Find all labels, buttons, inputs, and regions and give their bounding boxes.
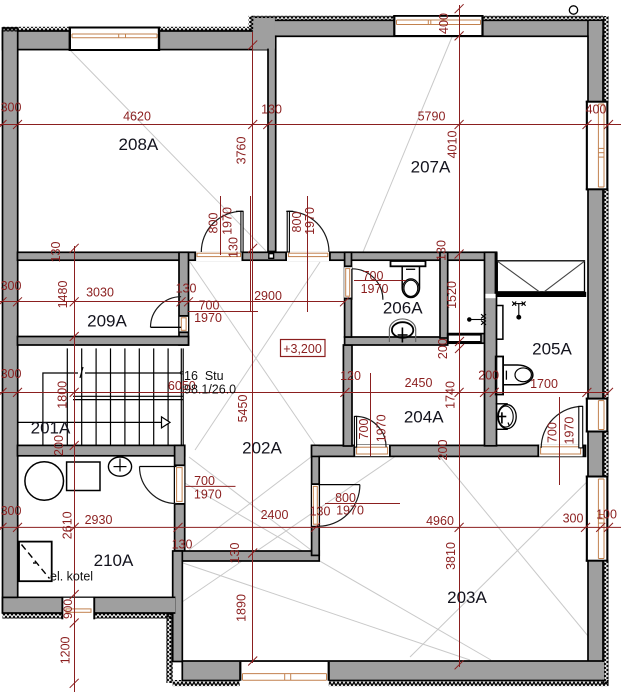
svg-text:130: 130: [261, 103, 282, 117]
svg-text:1970: 1970: [303, 207, 317, 235]
svg-text:1480: 1480: [56, 281, 70, 309]
svg-text:1970: 1970: [336, 504, 364, 518]
svg-text:4960: 4960: [426, 514, 454, 528]
svg-text:1970: 1970: [220, 207, 234, 235]
svg-text:98.1/26.0: 98.1/26.0: [184, 383, 236, 397]
svg-text:900: 900: [61, 599, 75, 619]
svg-text:800: 800: [206, 213, 220, 234]
svg-text:el. kotel: el. kotel: [50, 570, 93, 584]
svg-text:1520: 1520: [445, 281, 459, 309]
svg-text:1200: 1200: [58, 636, 72, 664]
svg-text:700: 700: [357, 419, 371, 440]
svg-text:1970: 1970: [562, 417, 576, 445]
svg-text:200: 200: [436, 338, 450, 359]
svg-text:200: 200: [478, 369, 499, 383]
svg-text:130: 130: [49, 242, 63, 263]
svg-text:4620: 4620: [123, 110, 151, 124]
svg-text:+3,200: +3,200: [283, 342, 322, 356]
svg-text:4010: 4010: [445, 131, 459, 159]
svg-text:300: 300: [1, 367, 22, 381]
svg-text:130: 130: [172, 538, 193, 552]
svg-text:207A: 207A: [411, 158, 451, 177]
svg-text:2930: 2930: [85, 513, 113, 527]
svg-text:2900: 2900: [254, 289, 282, 303]
svg-text:1970: 1970: [194, 311, 222, 325]
svg-text:210A: 210A: [94, 551, 134, 570]
svg-text:130: 130: [226, 237, 240, 258]
svg-text:208A: 208A: [119, 135, 159, 154]
svg-text:400: 400: [437, 13, 451, 34]
svg-text:201A: 201A: [31, 419, 71, 438]
svg-text:2610: 2610: [60, 511, 74, 539]
svg-text:3760: 3760: [234, 137, 248, 165]
svg-text:300: 300: [563, 512, 584, 526]
svg-text:206A: 206A: [383, 299, 423, 318]
svg-text:130: 130: [228, 543, 242, 564]
svg-text:1970: 1970: [361, 282, 389, 296]
svg-text:3030: 3030: [86, 286, 114, 300]
svg-text:300: 300: [1, 279, 22, 293]
svg-text:800: 800: [290, 212, 304, 233]
svg-text:130: 130: [310, 505, 331, 519]
svg-text:204A: 204A: [404, 408, 444, 427]
svg-text:1800: 1800: [56, 381, 70, 409]
svg-text:1740: 1740: [443, 381, 457, 409]
svg-text:200: 200: [52, 435, 66, 456]
svg-text:100: 100: [596, 508, 617, 522]
svg-text:120: 120: [340, 369, 361, 383]
svg-text:300: 300: [1, 504, 22, 518]
svg-text:1970: 1970: [194, 488, 222, 502]
svg-text:1700: 1700: [530, 377, 558, 391]
svg-text:700: 700: [545, 422, 559, 443]
svg-text:130: 130: [434, 240, 448, 261]
svg-text:300: 300: [1, 101, 22, 115]
svg-text:1890: 1890: [234, 594, 248, 622]
svg-text:209A: 209A: [87, 312, 127, 331]
svg-text:2400: 2400: [261, 508, 289, 522]
svg-text:5790: 5790: [418, 110, 446, 124]
svg-text:5450: 5450: [236, 395, 250, 423]
svg-text:400: 400: [586, 103, 607, 117]
svg-text:2450: 2450: [405, 376, 433, 390]
svg-text:205A: 205A: [532, 340, 572, 359]
svg-text:130: 130: [176, 282, 197, 296]
svg-text:203A: 203A: [447, 588, 487, 607]
svg-text:200: 200: [436, 440, 450, 461]
svg-text:3810: 3810: [444, 542, 458, 570]
svg-text:202A: 202A: [242, 439, 282, 458]
svg-text:1970: 1970: [374, 414, 388, 442]
svg-text:°16 Stu: °16 Stu: [179, 369, 224, 383]
svg-text:700: 700: [194, 474, 215, 488]
